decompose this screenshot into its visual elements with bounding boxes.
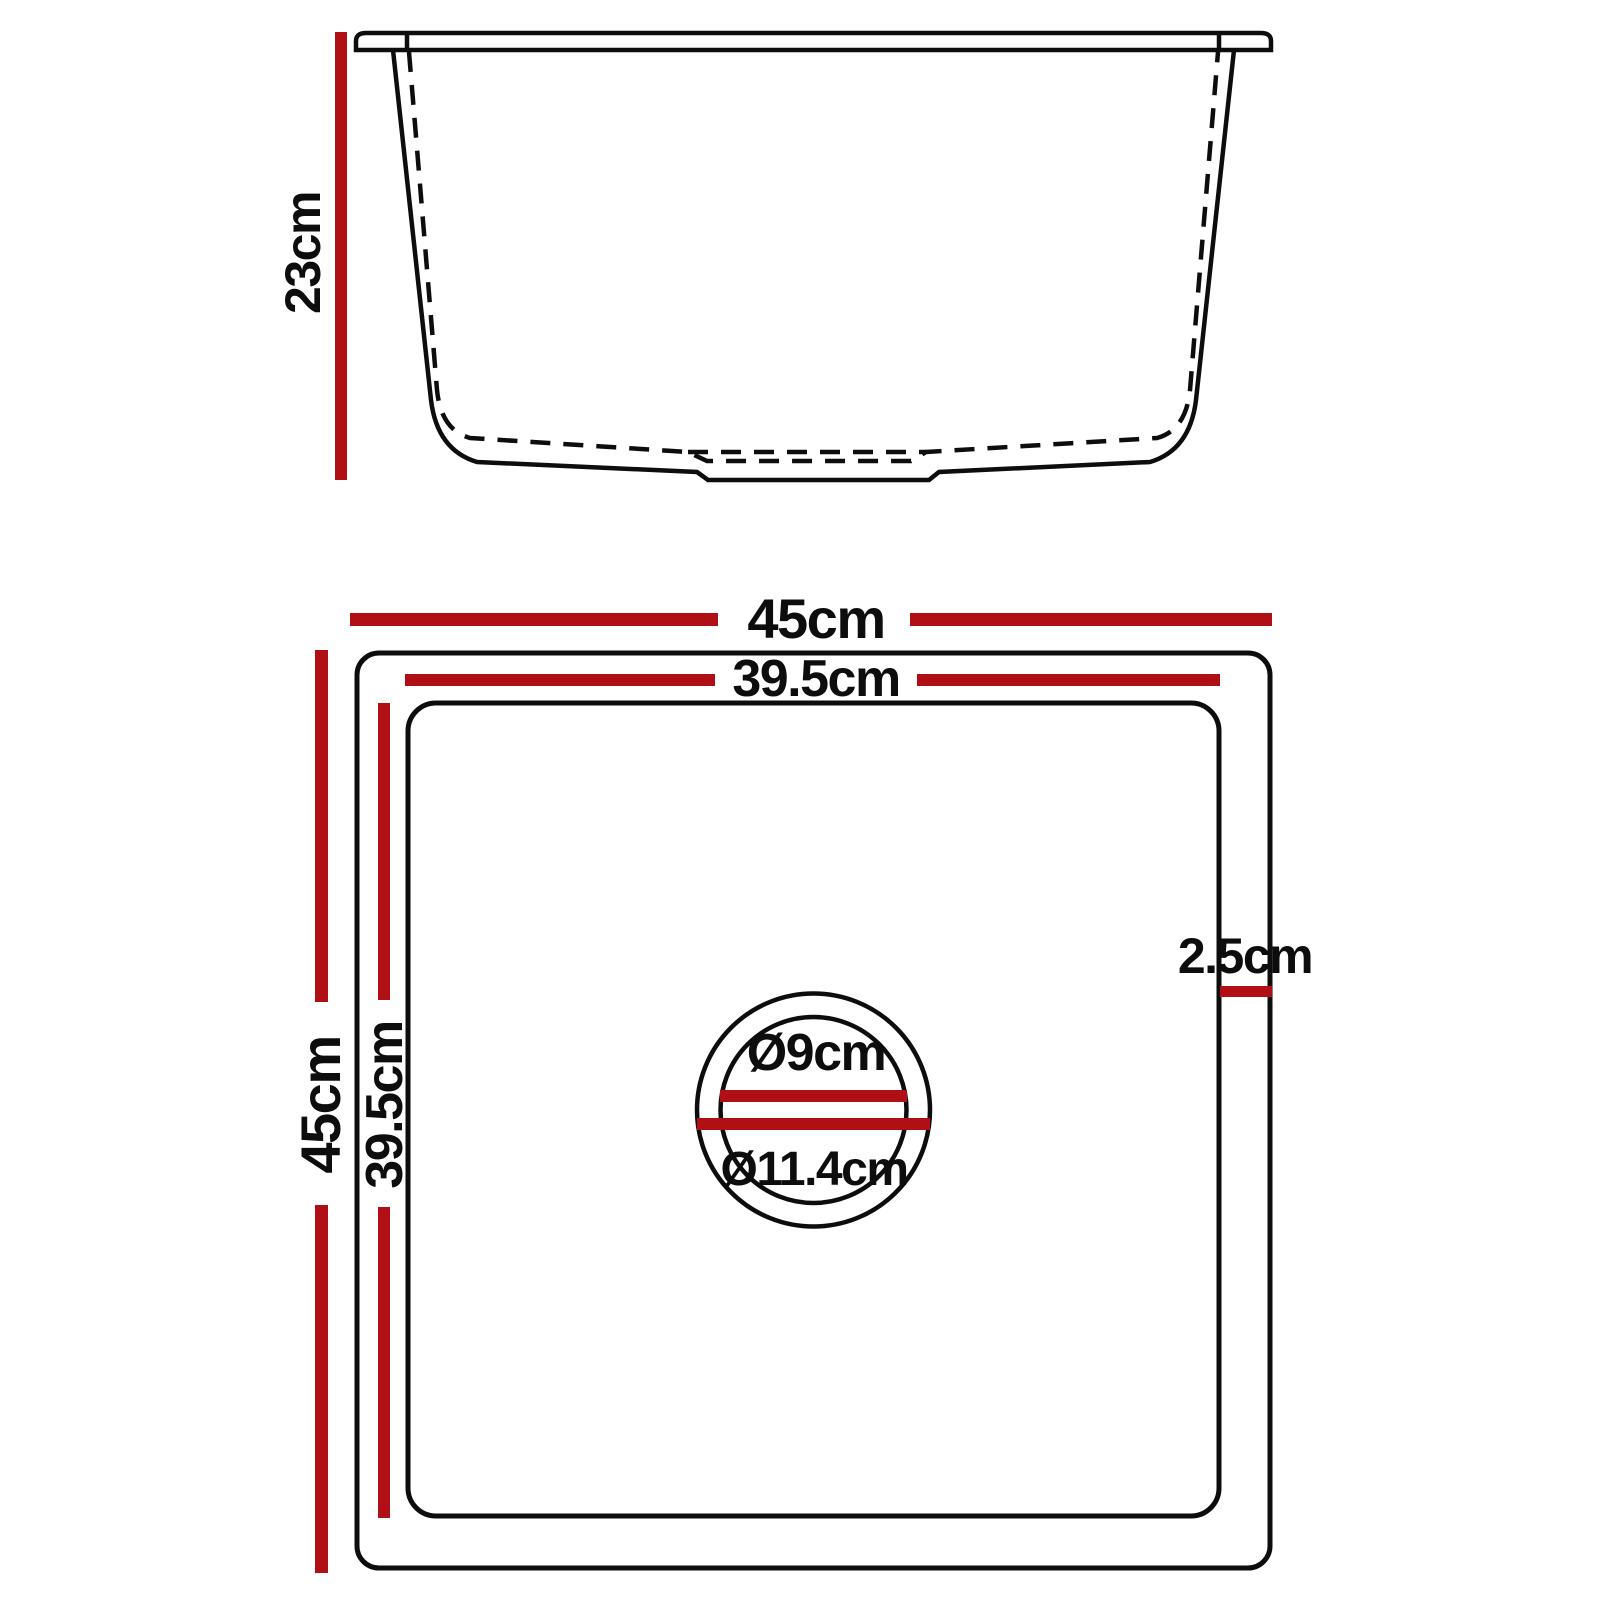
side-height-outer-label: 45cm (293, 1036, 349, 1173)
side-depth-dimension-bar (335, 32, 347, 480)
side-height-inner-label: 39.5cm (359, 1021, 411, 1188)
side-view-bowl-inner-dashed (409, 52, 1218, 461)
sink-top-view-drawing (357, 653, 1270, 1568)
top-width-45-bar-right (910, 613, 1272, 626)
side-height-45-bar-bottom (315, 1205, 328, 1573)
drain-9cm-diameter-bar (720, 1090, 907, 1102)
top-width-39-bar-right (917, 674, 1220, 686)
top-width-inner-label: 39.5cm (732, 653, 899, 705)
top-view-outer-edge (357, 653, 1270, 1568)
top-view-inner-bowl-edge (408, 703, 1219, 1516)
drain-outer-diameter-label: Ø11.4cm (721, 1146, 908, 1194)
sink-dimension-diagram: 23cm 45cm 39.5cm 45cm 39.5cm 2.5cm Ø9cm … (0, 0, 1600, 1600)
top-width-39-bar-left (405, 674, 715, 686)
side-view-flange-outline (356, 33, 1271, 50)
top-width-outer-label: 45cm (747, 591, 884, 647)
top-width-45-bar-left (350, 613, 718, 626)
side-height-39-bar-bottom (378, 1207, 390, 1518)
diagram-linework (0, 0, 1600, 1600)
side-height-39-bar-top (378, 703, 390, 1000)
side-depth-label: 23cm (278, 192, 328, 314)
sink-side-view-drawing (356, 33, 1271, 480)
drain-114cm-diameter-bar (697, 1118, 930, 1130)
side-view-bowl-outline (393, 50, 1234, 480)
rim-25cm-bar (1220, 986, 1272, 997)
side-height-45-bar-top (315, 650, 328, 1002)
rim-width-label: 2.5cm (1178, 931, 1312, 981)
drain-inner-diameter-label: Ø9cm (747, 1027, 886, 1079)
